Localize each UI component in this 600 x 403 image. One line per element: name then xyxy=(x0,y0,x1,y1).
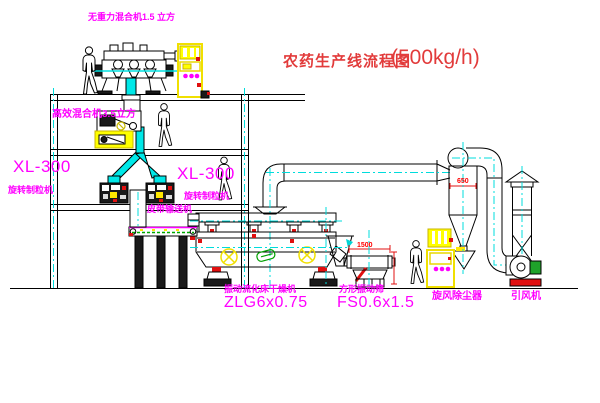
label-cyclone: 旋风除尘器 xyxy=(432,292,482,302)
label-granulator-right-name: 旋转制粒机 xyxy=(184,192,229,201)
dimension-sieve-length: 1500 xyxy=(357,242,373,249)
diagram-title-capacity: (500kg/h) xyxy=(391,47,480,68)
label-sieve-model: FS0.6x1.5 xyxy=(337,295,414,311)
label-dryer-model: ZLG6x0.75 xyxy=(224,295,308,311)
label-granulator-left-name: 旋转制粒机 xyxy=(8,186,53,195)
label-layer: 农药生产线流程图 (500kg/h) 无重力混合机1.5 立方 高效混合机3.5… xyxy=(0,0,600,403)
process-flow-diagram: 农药生产线流程图 (500kg/h) 无重力混合机1.5 立方 高效混合机3.5… xyxy=(0,0,600,403)
label-granulator-left-model: XL-300 xyxy=(13,158,71,175)
label-granulator-right-model: XL-300 xyxy=(177,165,235,182)
label-sieve-name: 方形振动筛 xyxy=(339,285,384,294)
label-high-efficiency-mixer: 高效混合机3.5立方 xyxy=(52,110,136,120)
label-dryer-name: 振动流化床干燥机 xyxy=(224,285,296,294)
dimension-cyclone-diameter: 650 xyxy=(457,178,469,185)
label-gravity-free-mixer: 无重力混合机1.5 立方 xyxy=(88,13,175,22)
label-belt-conveyor: 皮带输送机 xyxy=(147,205,192,214)
label-fan: 引风机 xyxy=(511,292,541,302)
